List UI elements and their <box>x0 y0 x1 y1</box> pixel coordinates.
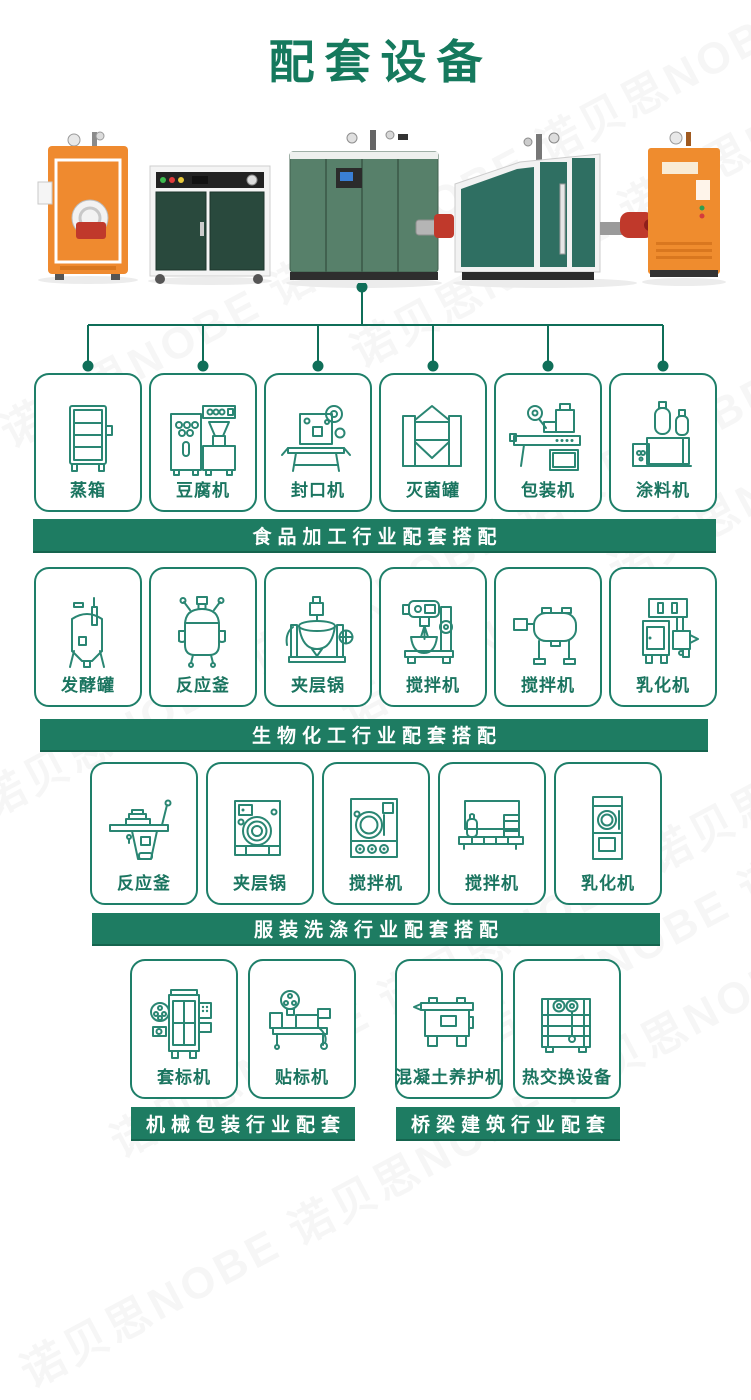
electric-steam-generator-orange <box>648 132 720 277</box>
card-planetary-mixer: 搅拌机 <box>379 567 487 707</box>
equipment-label: 乳化机 <box>581 874 635 894</box>
equipment-label: 贴标机 <box>275 1068 329 1088</box>
labeling-machine-icon <box>260 985 344 1065</box>
card-fermentation-tank: 发酵罐 <box>34 567 142 707</box>
electric-steam-boiler-cabinet <box>150 166 270 284</box>
large-steam-boiler-unit <box>455 133 656 280</box>
equipment-label: 反应釜 <box>176 676 230 696</box>
washing-line-icon <box>450 791 534 871</box>
drum-mixer-icon <box>506 593 590 673</box>
concrete-curing-machine-icon <box>407 985 491 1065</box>
equipment-label: 夹层锅 <box>233 874 287 894</box>
card-labeling-machine: 贴标机 <box>248 959 356 1099</box>
card-tofu-machine: 豆腐机 <box>149 373 257 512</box>
card-steam-cabinet: 蒸箱 <box>34 373 142 512</box>
card-packaging-machine: 包装机 <box>494 373 602 512</box>
coating-machine-icon <box>621 398 705 478</box>
tofu-machine-icon <box>161 398 245 478</box>
equipment-label: 热交换设备 <box>522 1068 612 1088</box>
equipment-label: 发酵罐 <box>61 676 115 696</box>
sleeve-labeling-machine-icon <box>142 985 226 1065</box>
card-vertical-dryer: 乳化机 <box>554 762 662 905</box>
card-reactor: 反应釜 <box>149 567 257 707</box>
page-title: 配套设备 <box>0 26 751 92</box>
sterilizing-tank-icon <box>391 398 475 478</box>
equipment-label: 混凝土养护机 <box>395 1068 503 1088</box>
card-coating-machine: 涂料机 <box>609 373 717 512</box>
card-concrete-curing-machine: 混凝土养护机 <box>395 959 503 1099</box>
equipment-label: 套标机 <box>157 1068 211 1088</box>
card-sterilizing-tank: 灭菌罐 <box>379 373 487 512</box>
fermentation-tank-icon <box>46 593 130 673</box>
card-dryer: 搅拌机 <box>322 762 430 905</box>
equipment-label: 封口机 <box>291 481 345 501</box>
gas-steam-generator-green <box>290 130 454 280</box>
card-washing-machine: 夹层锅 <box>206 762 314 905</box>
equipment-label: 搅拌机 <box>406 676 460 696</box>
banner-food-processing: 食品加工行业配套搭配 <box>33 519 716 553</box>
equipment-label: 反应釜 <box>117 874 171 894</box>
card-jacketed-kettle: 夹层锅 <box>264 567 372 707</box>
banner-laundry: 服装洗涤行业配套搭配 <box>92 913 660 946</box>
vertical-dryer-icon <box>566 791 650 871</box>
reactor-icon <box>161 593 245 673</box>
equipment-label: 涂料机 <box>636 481 690 501</box>
banner-bridge-construction: 桥梁建筑行业配套 <box>396 1107 620 1141</box>
equipment-label: 蒸箱 <box>70 481 106 501</box>
steam-cabinet-icon <box>46 398 130 478</box>
jacketed-kettle-icon <box>276 593 360 673</box>
dryer-icon <box>334 791 418 871</box>
equipment-label: 搅拌机 <box>465 874 519 894</box>
connector-tree <box>0 283 751 375</box>
ironing-table-icon <box>102 791 186 871</box>
planetary-mixer-icon <box>391 593 475 673</box>
card-sealing-machine: 封口机 <box>264 373 372 512</box>
banner-machinery-packaging: 机械包装行业配套 <box>131 1107 355 1141</box>
card-emulsifier: 乳化机 <box>609 567 717 707</box>
product-photos <box>0 126 751 288</box>
heat-exchanger-icon <box>525 985 609 1065</box>
equipment-label: 灭菌罐 <box>406 481 460 501</box>
equipment-label: 乳化机 <box>636 676 690 696</box>
banner-biochemical: 生物化工行业配套搭配 <box>40 719 708 752</box>
equipment-label: 豆腐机 <box>176 481 230 501</box>
card-ironing-table: 反应釜 <box>90 762 198 905</box>
equipment-label: 包装机 <box>521 481 575 501</box>
emulsifier-icon <box>621 593 705 673</box>
equipment-label: 夹层锅 <box>291 676 345 696</box>
card-sleeve-labeling-machine: 套标机 <box>130 959 238 1099</box>
washing-machine-icon <box>218 791 302 871</box>
card-drum-mixer: 搅拌机 <box>494 567 602 707</box>
watermark-text: 诺贝思NOBE 诺贝思NOBE 诺贝思NOBE <box>7 924 751 1400</box>
vertical-steam-boiler-orange <box>38 132 128 280</box>
equipment-label: 搅拌机 <box>521 676 575 696</box>
equipment-label: 搅拌机 <box>349 874 403 894</box>
card-heat-exchanger: 热交换设备 <box>513 959 621 1099</box>
packaging-machine-icon <box>506 398 590 478</box>
card-washing-line: 搅拌机 <box>438 762 546 905</box>
sealing-machine-icon <box>276 398 360 478</box>
